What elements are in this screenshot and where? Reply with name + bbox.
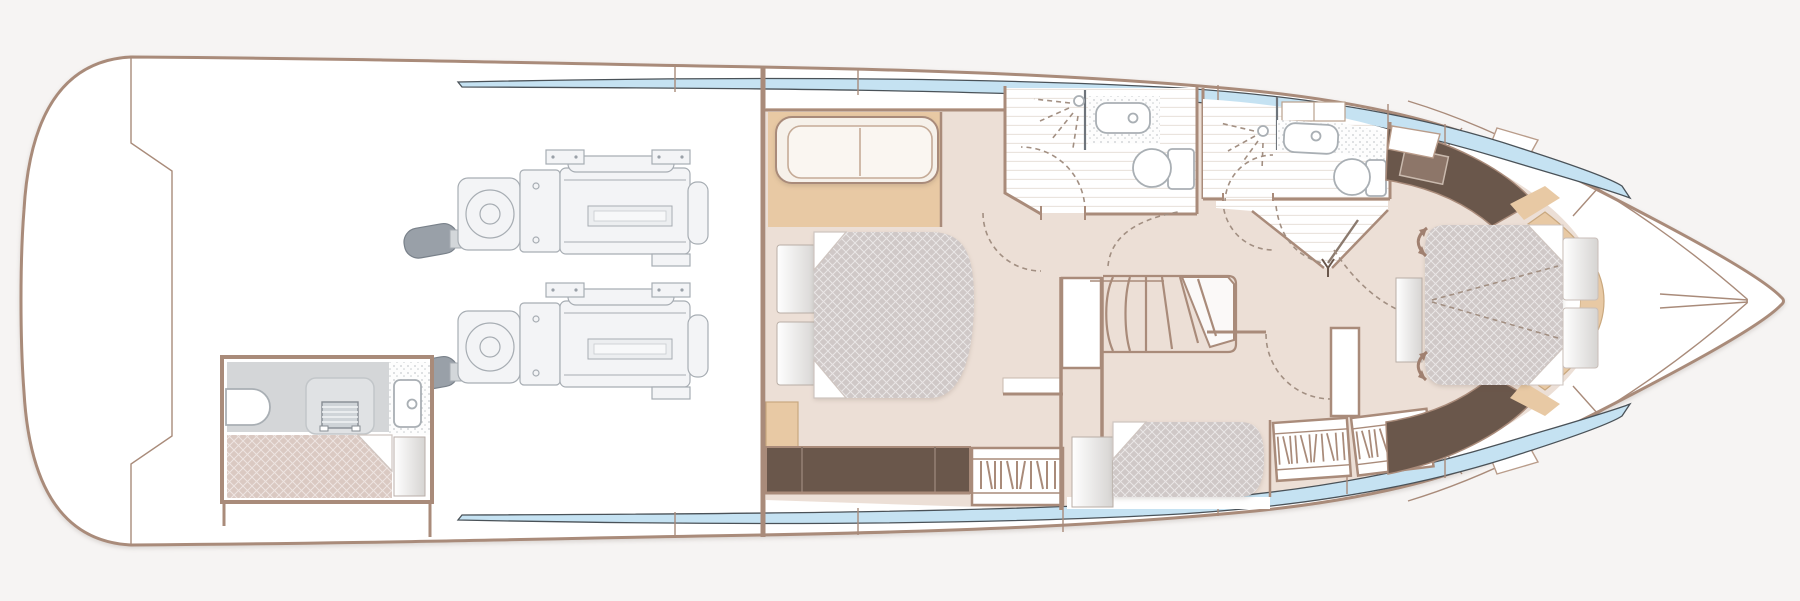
toilet-icon xyxy=(1334,159,1386,196)
sink-icon xyxy=(1283,123,1338,155)
faucet-icon xyxy=(1129,114,1138,123)
yacht-deck-plan xyxy=(0,0,1800,601)
sofa xyxy=(776,117,938,183)
locker xyxy=(1072,437,1113,507)
pillow xyxy=(777,322,817,385)
crew-toilet-icon xyxy=(226,389,270,425)
deck-plan-svg xyxy=(0,0,1800,601)
wardrobe xyxy=(972,448,1063,505)
stair-side-locker xyxy=(1062,278,1101,368)
bed-step xyxy=(1396,278,1422,362)
master-bed xyxy=(814,232,974,398)
ladder-icon xyxy=(320,402,360,431)
faucet-icon xyxy=(1312,132,1321,141)
sideboard xyxy=(766,447,970,493)
shower-head-icon xyxy=(1074,96,1084,106)
wardrobe xyxy=(1273,418,1351,481)
sink-icon xyxy=(1096,103,1150,133)
pillow xyxy=(1563,308,1598,368)
pillow xyxy=(777,245,817,313)
shower-head-icon xyxy=(1258,126,1268,136)
forward-bed xyxy=(1425,225,1563,385)
nightstand xyxy=(766,402,798,447)
faucet-icon xyxy=(408,400,417,409)
dresser-nook xyxy=(1003,378,1060,393)
cabin-door-partition xyxy=(1331,328,1359,416)
pillow xyxy=(1563,238,1598,300)
toilet-icon xyxy=(1133,149,1194,189)
crew-locker xyxy=(394,437,425,496)
